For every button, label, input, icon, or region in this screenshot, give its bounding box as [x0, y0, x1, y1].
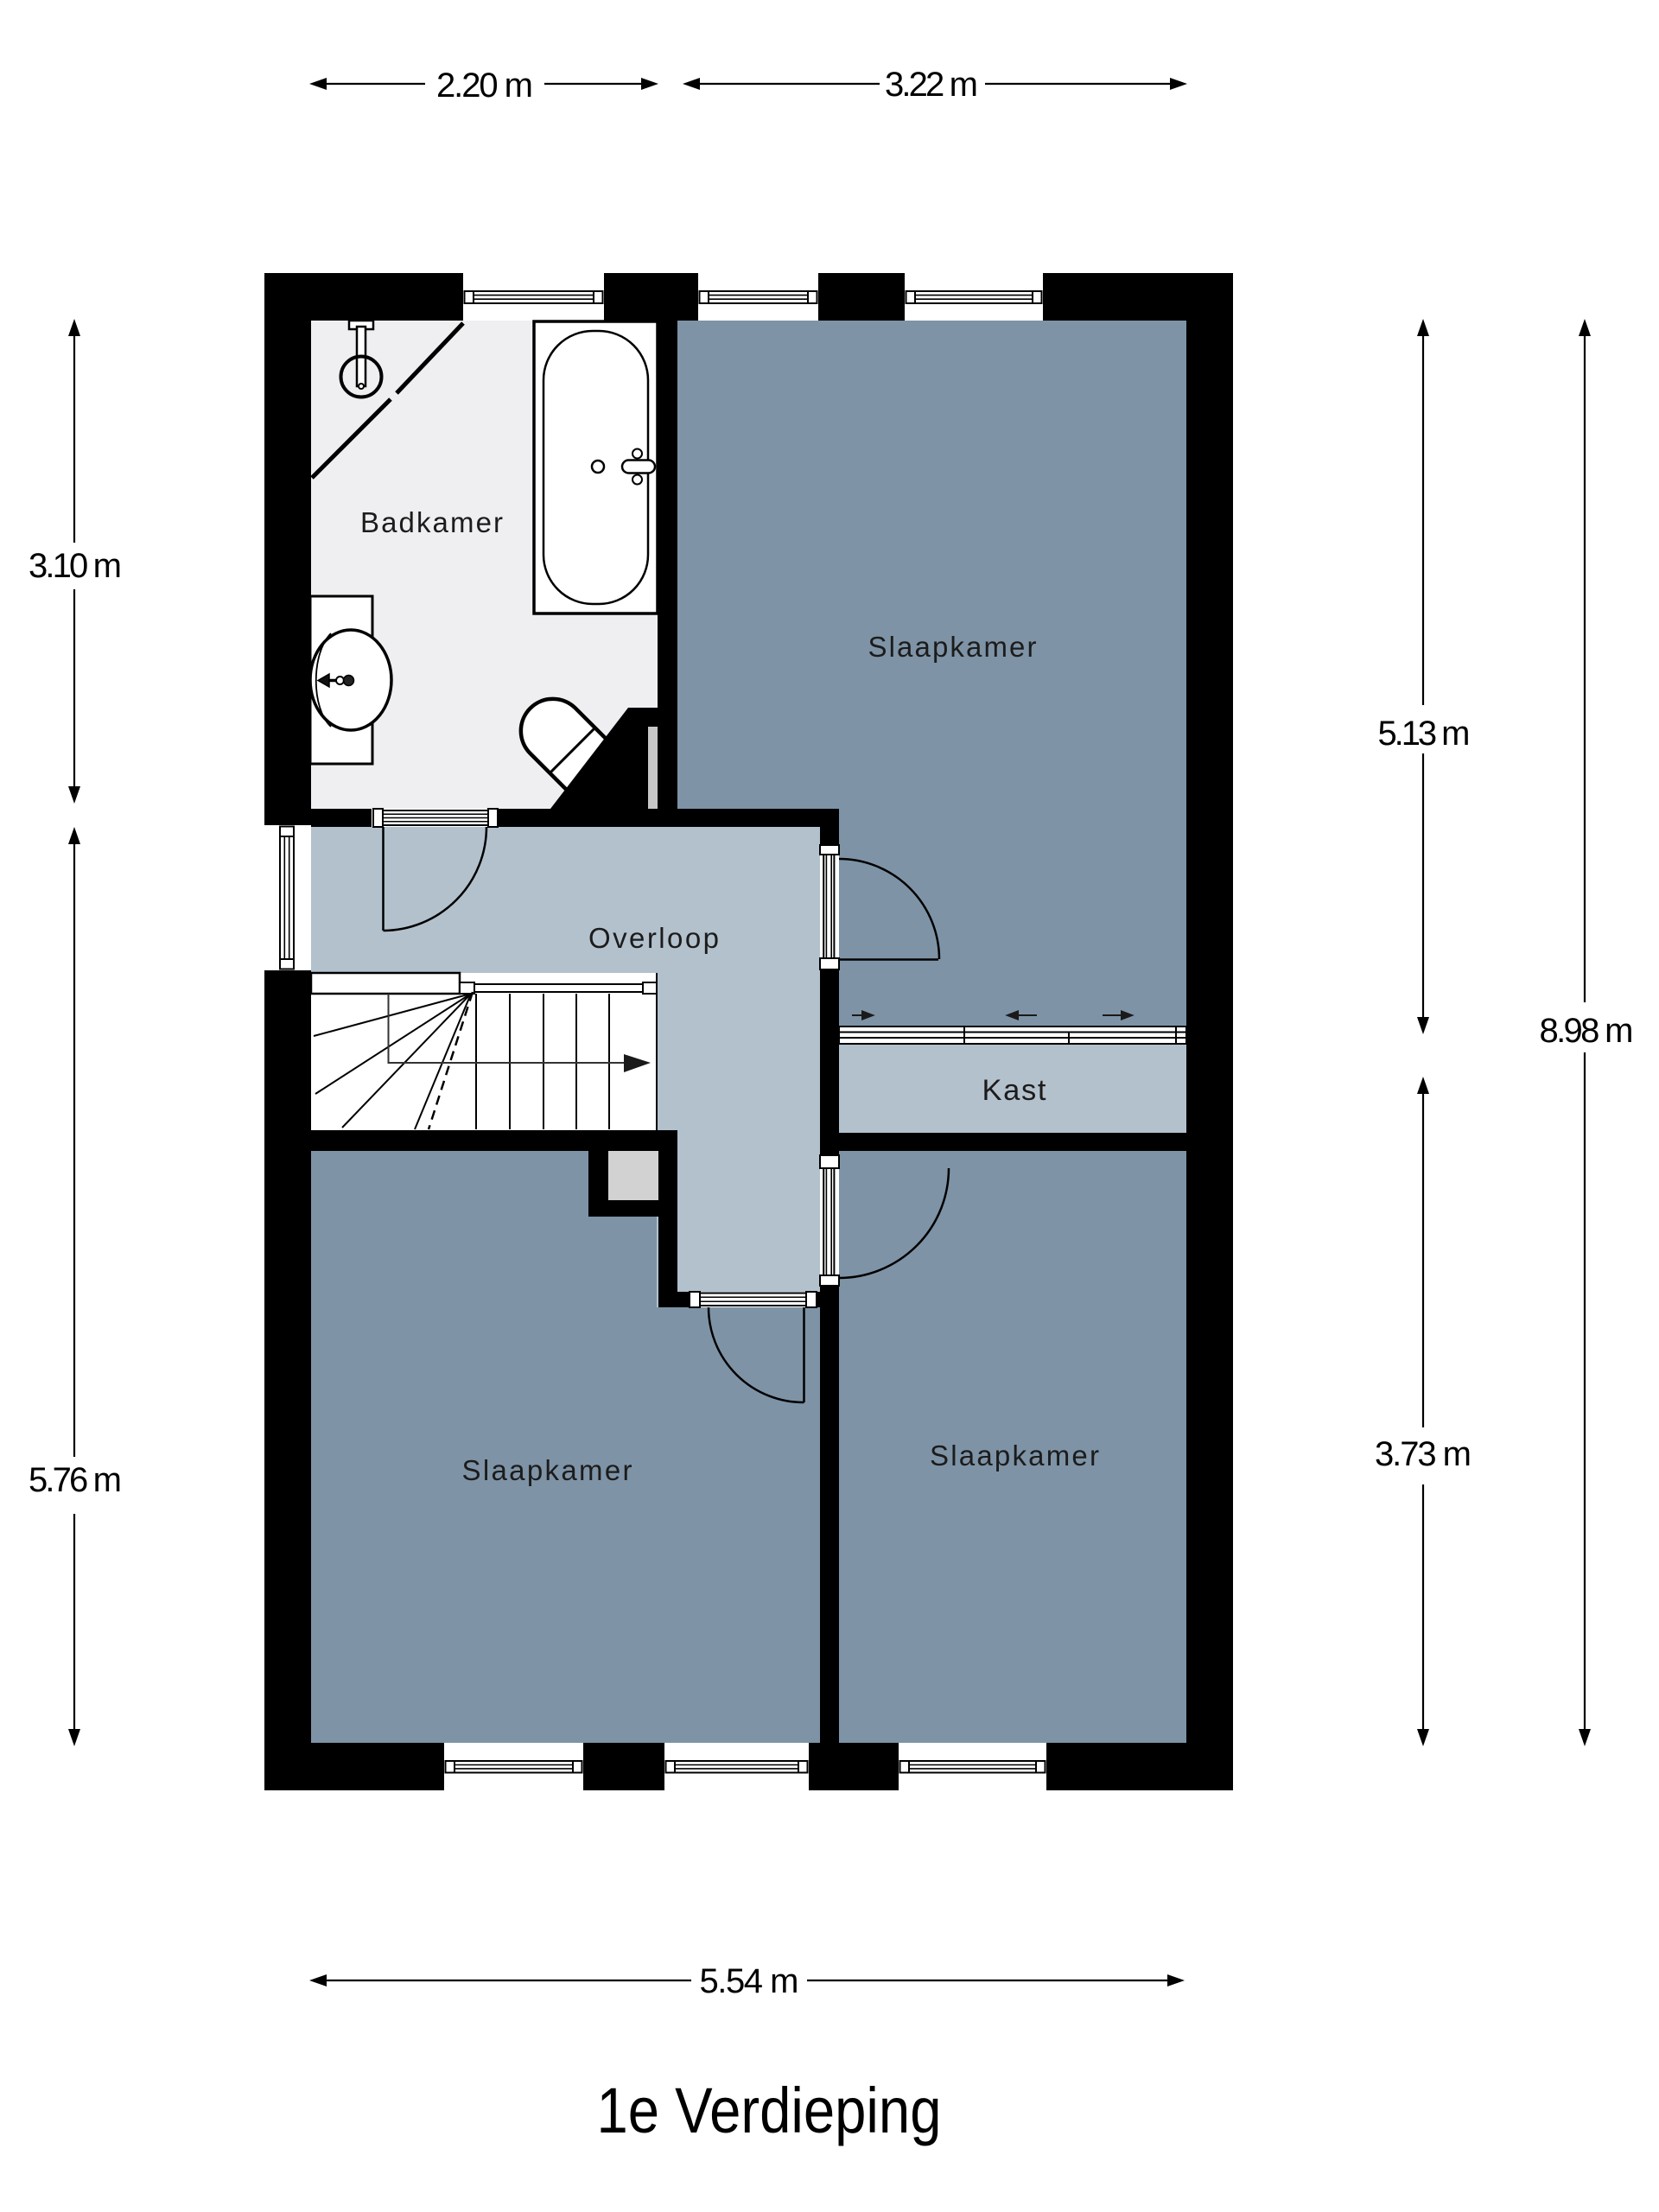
svg-text:5.54 m: 5.54 m — [700, 1962, 799, 2000]
svg-text:1e Verdieping: 1e Verdieping — [597, 2075, 942, 2146]
svg-text:5.76 m: 5.76 m — [29, 1461, 122, 1499]
svg-text:3.10 m: 3.10 m — [29, 547, 122, 585]
svg-text:3.22 m: 3.22 m — [885, 66, 978, 104]
svg-text:2.20 m: 2.20 m — [436, 67, 533, 105]
svg-text:8.98 m: 8.98 m — [1540, 1012, 1634, 1050]
svg-text:5.13 m: 5.13 m — [1378, 715, 1471, 753]
svg-text:Slaapkamer: Slaapkamer — [930, 1440, 1099, 1471]
svg-text:Slaapkamer: Slaapkamer — [868, 631, 1037, 663]
svg-text:Overloop: Overloop — [588, 922, 719, 954]
svg-text:Slaapkamer: Slaapkamer — [462, 1454, 632, 1486]
svg-text:3.73 m: 3.73 m — [1375, 1435, 1471, 1473]
